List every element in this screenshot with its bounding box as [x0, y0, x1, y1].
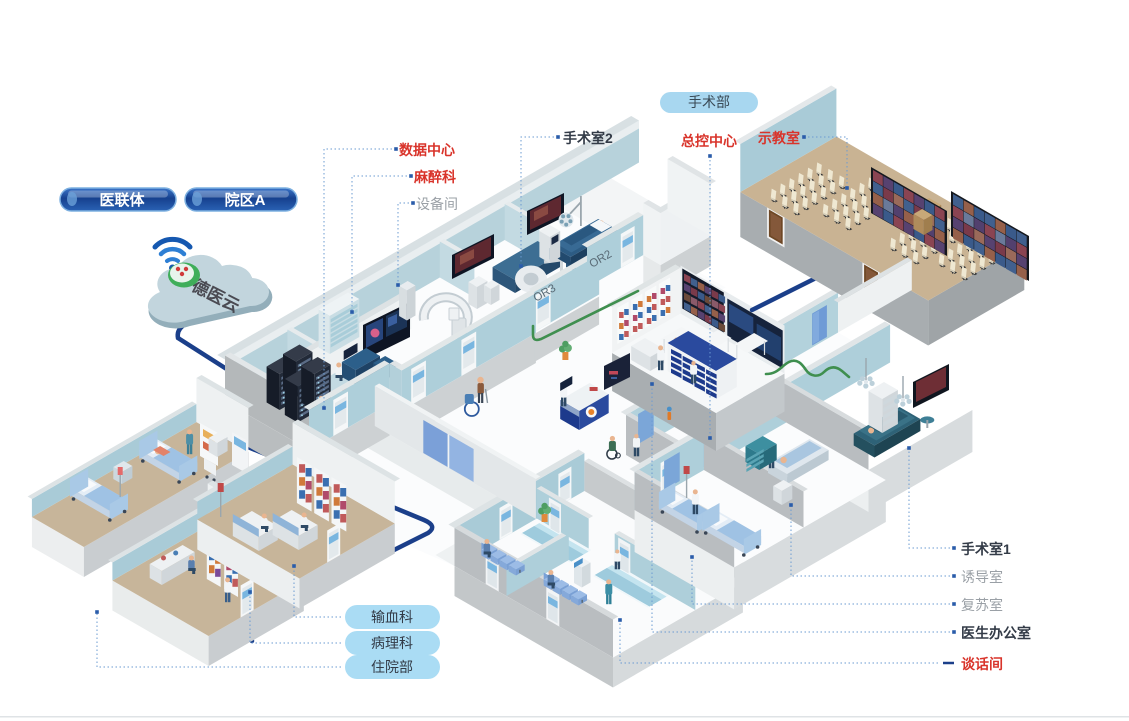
svg-text:手术部: 手术部	[688, 94, 730, 110]
svg-text:示教室: 示教室	[758, 130, 800, 146]
svg-text:复苏室: 复苏室	[961, 597, 1003, 613]
svg-text:设备间: 设备间	[416, 196, 458, 212]
svg-text:数据中心: 数据中心	[399, 142, 455, 158]
svg-text:医生办公室: 医生办公室	[961, 625, 1031, 641]
svg-text:诱导室: 诱导室	[961, 569, 1003, 585]
svg-text:输血科: 输血科	[371, 609, 413, 625]
svg-text:院区A: 院区A	[225, 191, 266, 209]
svg-text:医联体: 医联体	[99, 191, 145, 209]
svg-text:总控中心: 总控中心	[681, 133, 737, 149]
svg-text:手术室2: 手术室2	[563, 130, 613, 146]
svg-text:麻醉科: 麻醉科	[413, 169, 456, 185]
svg-text:住院部: 住院部	[371, 659, 413, 675]
svg-text:谈话间: 谈话间	[961, 656, 1003, 672]
svg-text:手术室1: 手术室1	[961, 541, 1011, 557]
svg-text:病理科: 病理科	[371, 635, 413, 651]
